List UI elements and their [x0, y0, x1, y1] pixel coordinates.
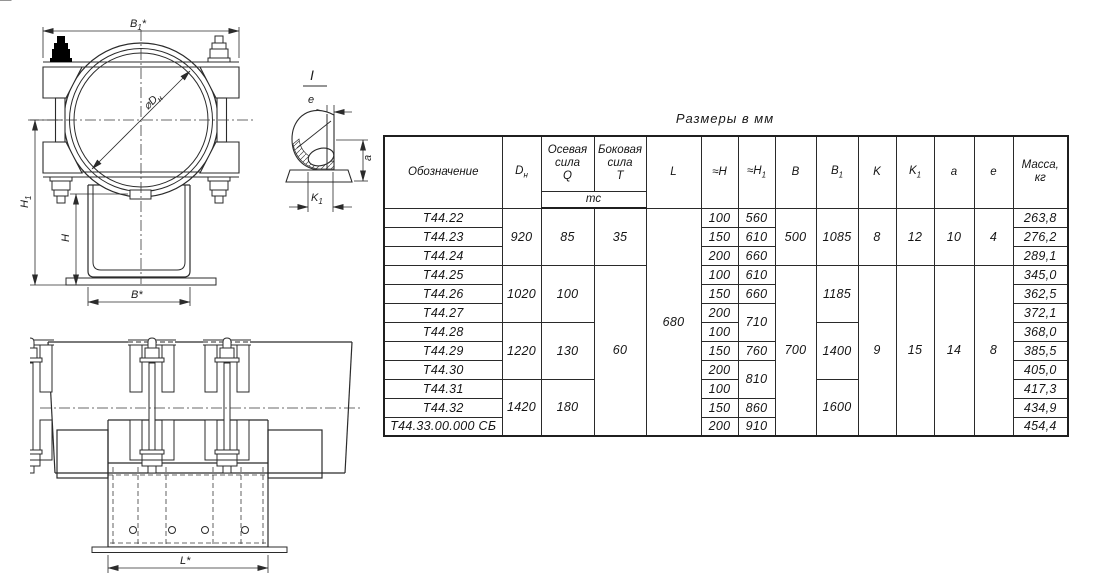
cell-a: 10: [934, 208, 974, 265]
cell-designation: Т44.24: [384, 246, 502, 265]
dim-label-h1: H1: [19, 196, 33, 208]
cell-h1: 610: [738, 227, 775, 246]
cell-mass: 434,9: [1013, 398, 1068, 417]
cell-h: 150: [701, 284, 738, 303]
col-header-b1: B1: [816, 136, 858, 208]
col-header-e: e: [974, 136, 1013, 208]
cell-b1: 1400: [816, 322, 858, 379]
cell-h1: 560: [738, 208, 775, 227]
cell-h1: 810: [738, 360, 775, 398]
cell-mass: 289,1: [1013, 246, 1068, 265]
cell-b1: 1600: [816, 379, 858, 436]
cell-mass: 263,8: [1013, 208, 1068, 227]
col-header-l: L: [646, 136, 701, 208]
cell-h1: 760: [738, 341, 775, 360]
cell-t: 60: [594, 265, 646, 436]
col-header-designation: Обозначение: [384, 136, 502, 208]
cell-h1: 710: [738, 303, 775, 341]
cell-h: 200: [701, 246, 738, 265]
col-header-force-units: тс: [541, 191, 646, 208]
anchor-holes: [130, 527, 249, 534]
cell-mass: 454,4: [1013, 417, 1068, 436]
cell-k: 8: [858, 208, 896, 265]
cell-h: 150: [701, 398, 738, 417]
cell-dn: 1020: [502, 265, 541, 322]
dim-label-h: H: [60, 234, 72, 242]
cell-designation: Т44.22: [384, 208, 502, 227]
cell-h: 100: [701, 208, 738, 227]
cell-mass: 362,5: [1013, 284, 1068, 303]
cell-h: 150: [701, 341, 738, 360]
detail-view: I e a: [286, 67, 374, 212]
cell-h: 100: [701, 265, 738, 284]
col-header-k: K: [858, 136, 896, 208]
cell-mass: 276,2: [1013, 227, 1068, 246]
pipe-outline: [48, 342, 352, 473]
cell-mass: 368,0: [1013, 322, 1068, 341]
cell-e: 8: [974, 265, 1013, 436]
cell-designation: Т44.32: [384, 398, 502, 417]
detail-label: I: [310, 67, 314, 83]
cell-mass: 417,3: [1013, 379, 1068, 398]
cell-q: 180: [541, 379, 594, 436]
cell-mass: 385,5: [1013, 341, 1068, 360]
cell-b1: 1085: [816, 208, 858, 265]
side-view-drawing: L*: [30, 330, 390, 586]
cell-h: 200: [701, 303, 738, 322]
col-header-mass: Масса, кг: [1013, 136, 1068, 208]
cell-designation: Т44.25: [384, 265, 502, 284]
col-header-lateral-force: Боковая сила T: [594, 136, 646, 191]
dim-label-e: e: [308, 94, 314, 106]
cell-t: 35: [594, 208, 646, 265]
col-header-h1: ≈H1: [738, 136, 775, 208]
col-header-a: a: [934, 136, 974, 208]
col-header-dn: Dн: [502, 136, 541, 208]
cell-h: 100: [701, 322, 738, 341]
cell-h1: 660: [738, 284, 775, 303]
cell-k1: 12: [896, 208, 934, 265]
cell-q: 100: [541, 265, 594, 322]
cell-designation: Т44.30: [384, 360, 502, 379]
cell-designation: Т44.23: [384, 227, 502, 246]
cell-b: 500: [775, 208, 816, 265]
cell-designation: Т44.26: [384, 284, 502, 303]
cell-b1: 1185: [816, 265, 858, 322]
cell-mass: 345,0: [1013, 265, 1068, 284]
col-header-b: B: [775, 136, 816, 208]
cell-dn: 920: [502, 208, 541, 265]
base-plate: [92, 547, 287, 553]
cell-k1: 15: [896, 265, 934, 436]
table-row: Т44.22 920 85 35 680 100 560 500 1085 8 …: [384, 208, 1068, 227]
dim-label-b-bottom: B*: [131, 289, 143, 301]
cell-h: 200: [701, 360, 738, 379]
cell-h: 100: [701, 379, 738, 398]
col-header-h: ≈H: [701, 136, 738, 208]
cell-designation: Т44.31: [384, 379, 502, 398]
table-row: Т44.25 1020 100 60 100 610 700 1185 9 15…: [384, 265, 1068, 284]
table-title: Размеры в мм: [383, 111, 1067, 126]
cell-designation: Т44.33.00.000 СБ: [384, 417, 502, 436]
cell-designation: Т44.28: [384, 322, 502, 341]
cell-designation: Т44.29: [384, 341, 502, 360]
cell-h1: 910: [738, 417, 775, 436]
col-header-k1: K1: [896, 136, 934, 208]
dim-label-b1-top: B1*: [130, 18, 147, 32]
cell-l: 680: [646, 208, 701, 436]
cell-e: 4: [974, 208, 1013, 265]
front-view-drawing: B1* ⌀Dн H1 H B* I e: [0, 0, 400, 320]
cell-h1: 660: [738, 246, 775, 265]
cell-h1: 860: [738, 398, 775, 417]
cell-h: 200: [701, 417, 738, 436]
cell-mass: 372,1: [1013, 303, 1068, 322]
dimension-table: Обозначение Dн Осевая сила Q Боковая сил…: [383, 135, 1069, 437]
cell-mass: 405,0: [1013, 360, 1068, 379]
dim-label-k1: K1: [311, 192, 323, 206]
drawing-sheet: B1* ⌀Dн H1 H B* I e: [0, 0, 1100, 586]
dim-label-l: L*: [180, 555, 191, 567]
cell-h1: 610: [738, 265, 775, 284]
lower-lug: [130, 190, 151, 199]
dim-label-diameter: ⌀Dн: [141, 90, 165, 114]
side-stop-blocks: [57, 430, 322, 478]
cell-a: 14: [934, 265, 974, 436]
cell-k: 9: [858, 265, 896, 436]
cell-q: 85: [541, 208, 594, 265]
cell-h: 150: [701, 227, 738, 246]
dim-label-a: a: [362, 155, 374, 161]
cell-dn: 1420: [502, 379, 541, 436]
cell-dn: 1220: [502, 322, 541, 379]
cell-q: 130: [541, 322, 594, 379]
cell-b: 700: [775, 265, 816, 436]
col-header-axial-force: Осевая сила Q: [541, 136, 594, 191]
cell-designation: Т44.27: [384, 303, 502, 322]
